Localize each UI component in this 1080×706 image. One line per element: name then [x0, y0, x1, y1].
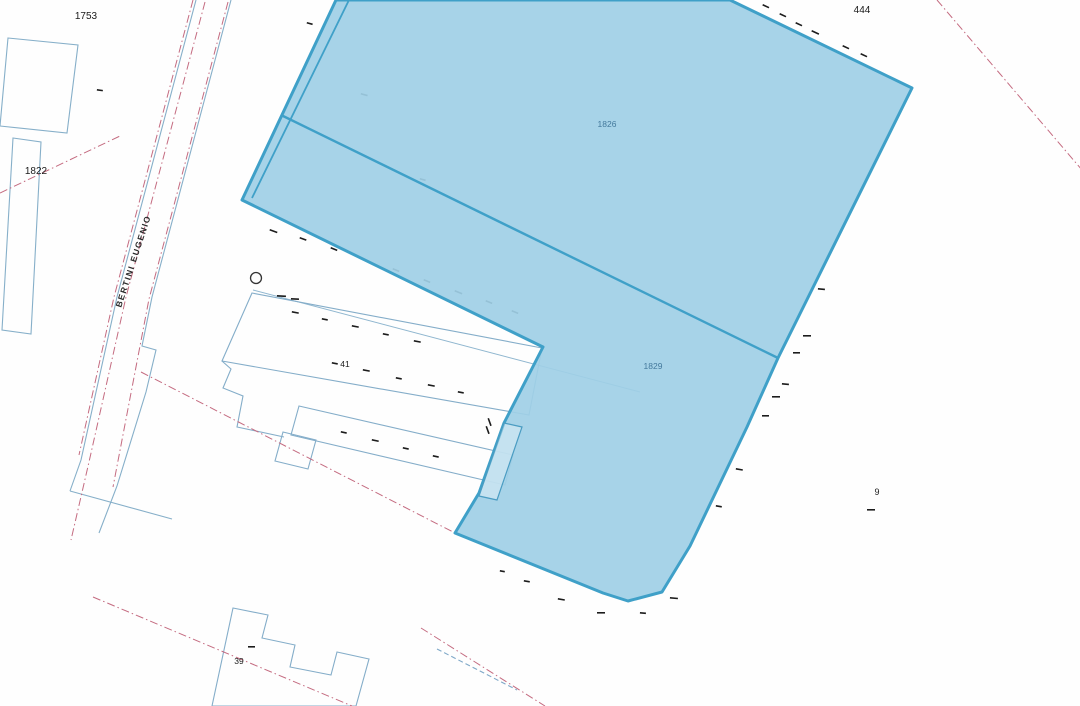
label-building-39: 39 [234, 656, 244, 666]
survey-tick-mark [867, 509, 875, 511]
label-parcel-1829: 1829 [644, 361, 663, 371]
label-parcel-1753: 1753 [75, 11, 98, 22]
survey-tick-mark [793, 352, 800, 354]
survey-tick-mark [597, 612, 605, 614]
label-building-41: 41 [340, 359, 350, 369]
label-parcel-1826: 1826 [598, 119, 617, 129]
survey-tick-mark [248, 646, 255, 648]
cadastral-map-stage: 175344418221826182941939BERTINI EUGENIO [0, 0, 1080, 706]
survey-tick-mark [772, 396, 780, 398]
label-parcel-9: 9 [874, 487, 879, 497]
survey-tick-mark [803, 335, 811, 337]
survey-tick-mark [762, 415, 769, 417]
label-parcel-1822: 1822 [25, 166, 48, 177]
cadastral-map: 175344418221826182941939BERTINI EUGENIO [0, 0, 1080, 706]
label-parcel-444: 444 [854, 5, 871, 16]
